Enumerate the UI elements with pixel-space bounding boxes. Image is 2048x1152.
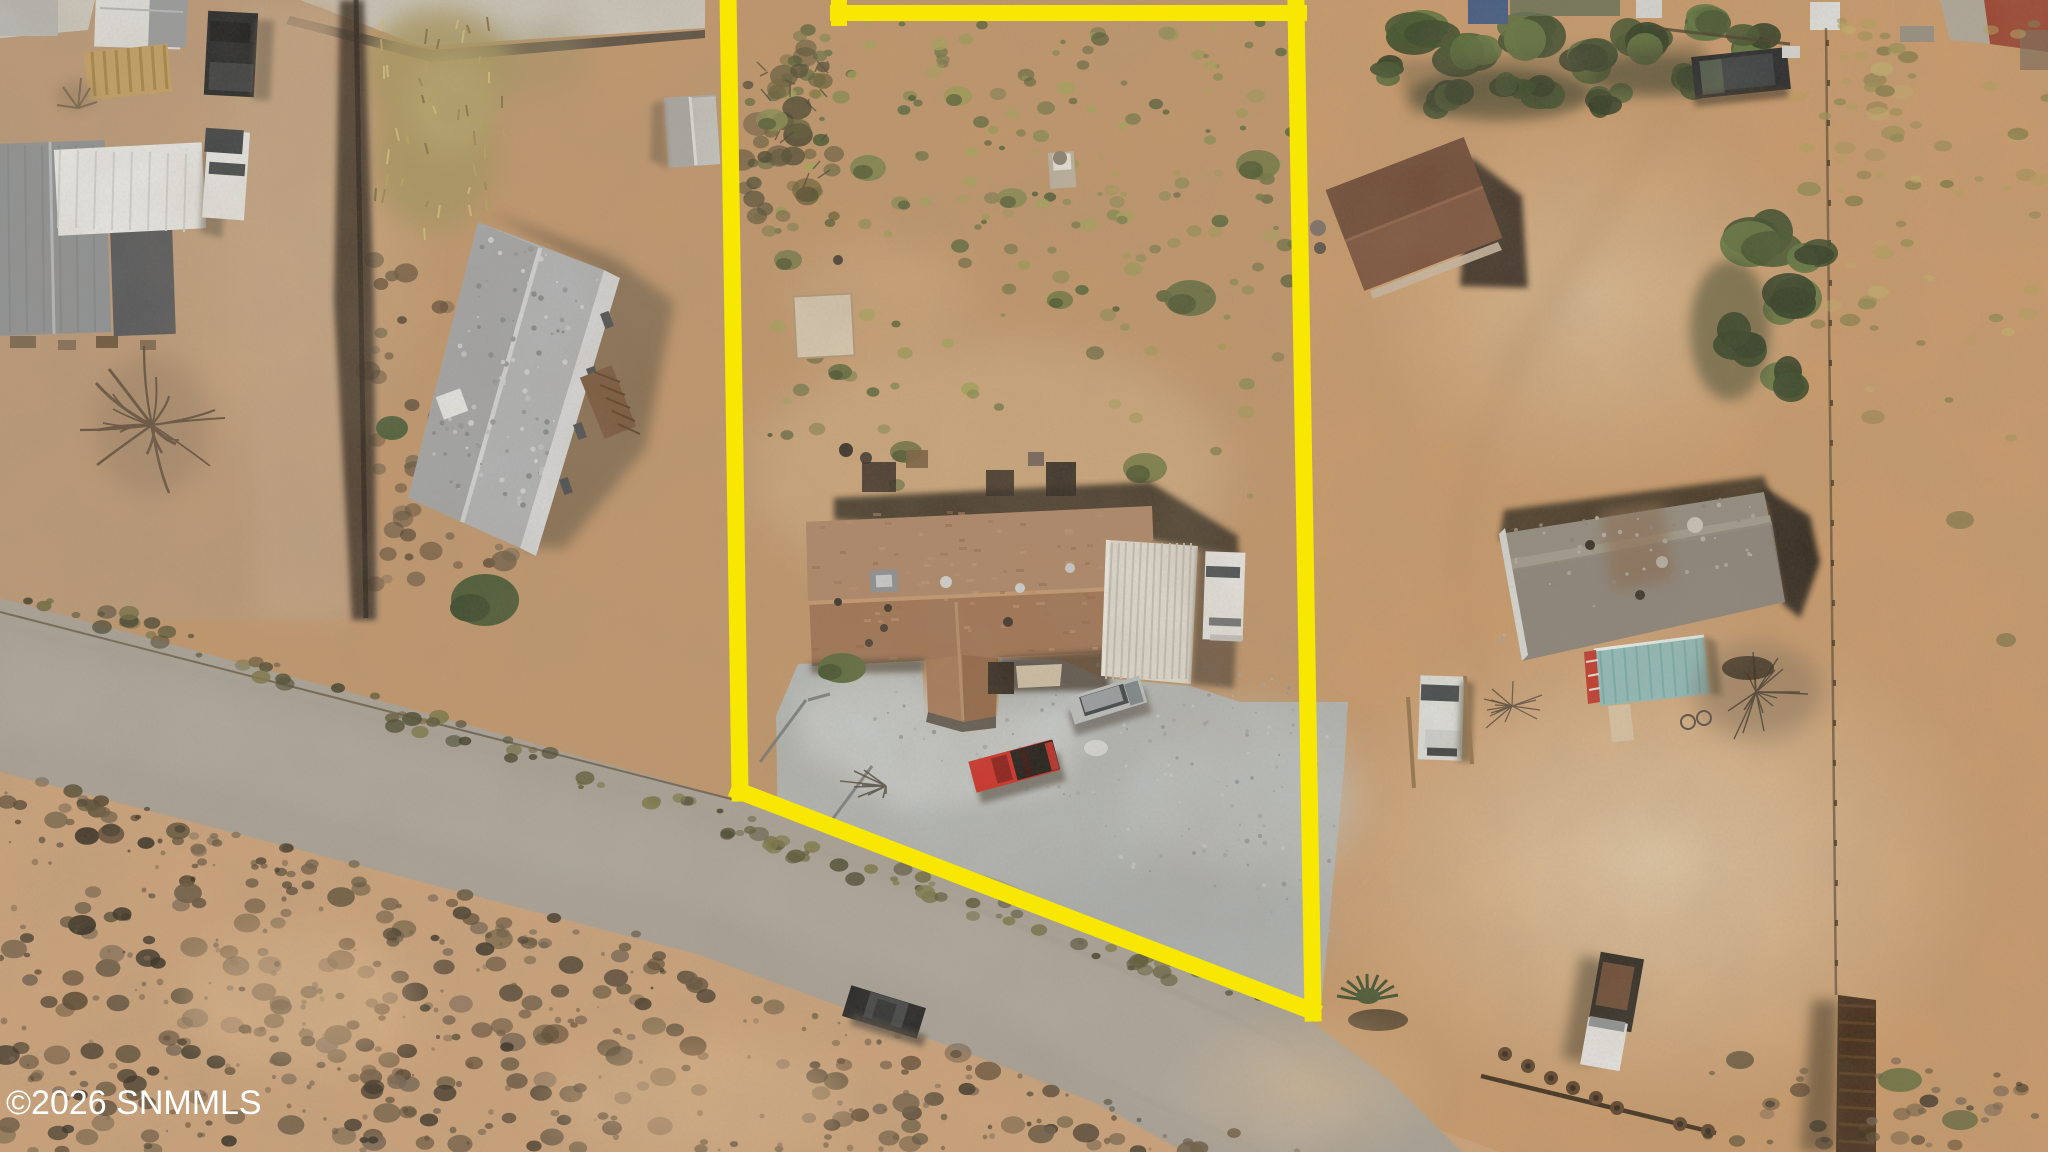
svg-text:©2026 SNMMLS: ©2026 SNMMLS [6, 1084, 262, 1122]
